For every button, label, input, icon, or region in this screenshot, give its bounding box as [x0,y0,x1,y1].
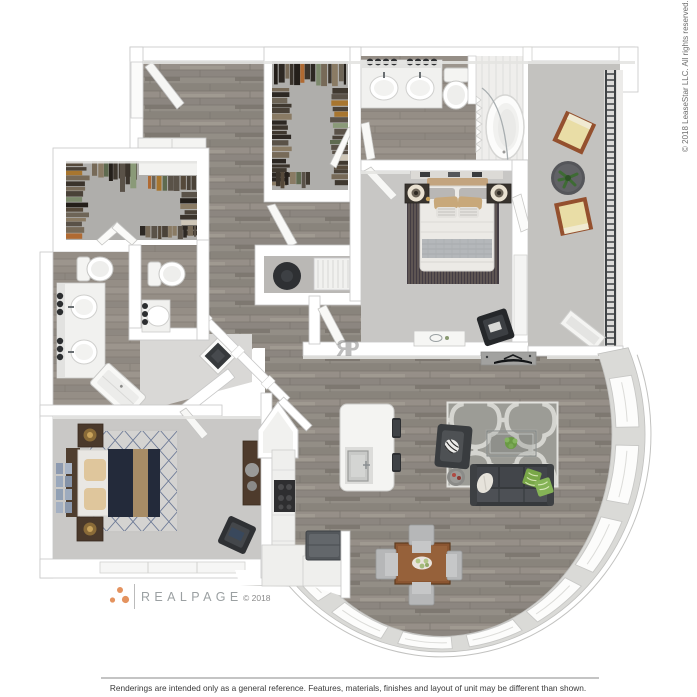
svg-text:P: P [344,335,360,361]
svg-text:REALPAGE: REALPAGE [141,590,243,604]
svg-text:© 2018: © 2018 [243,593,271,603]
svg-text:© 2018 LeaseStar LLC. All righ: © 2018 LeaseStar LLC. All rights reserve… [681,0,690,152]
svg-text:Renderings are intended only a: Renderings are intended only as a genera… [110,683,586,693]
